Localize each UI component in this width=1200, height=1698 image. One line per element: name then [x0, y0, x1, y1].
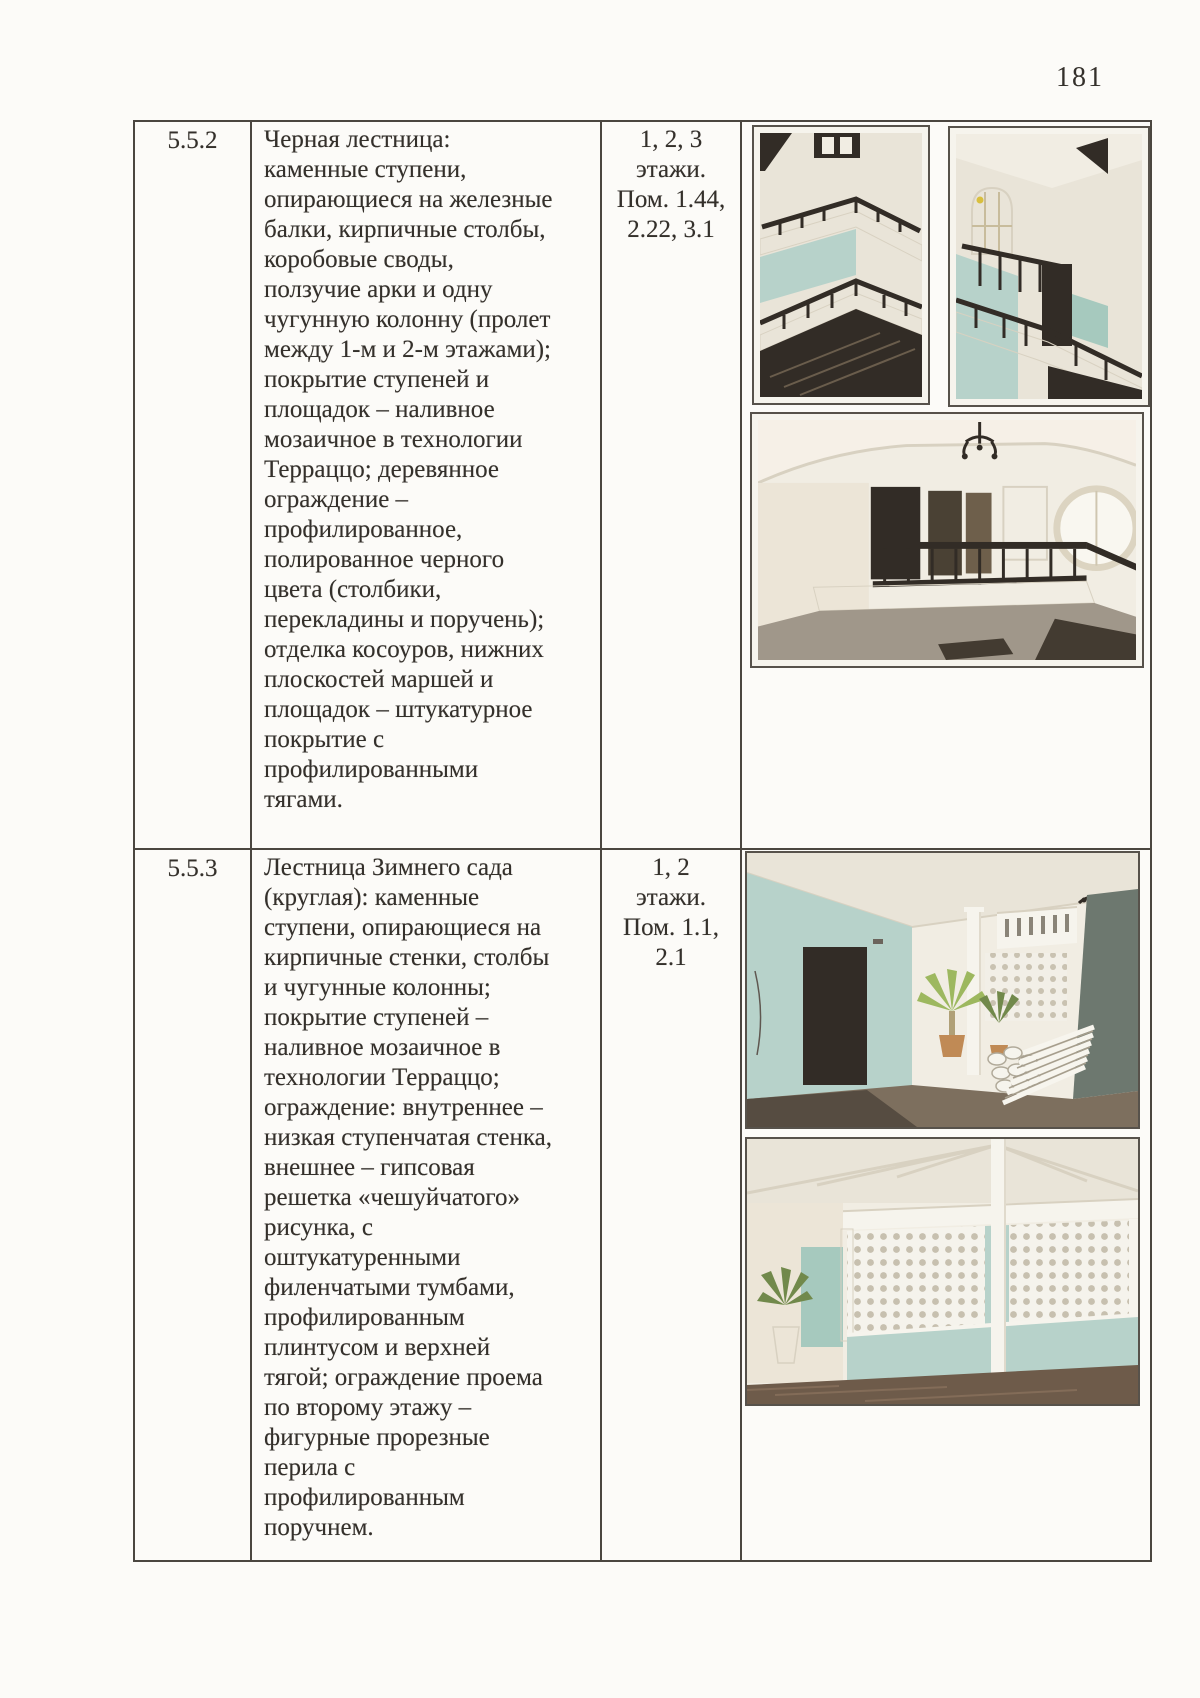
- lattice-panel: [985, 953, 1067, 1021]
- row-photos: [742, 850, 1150, 1558]
- skylight: [814, 133, 860, 158]
- photo-illustration: [747, 1139, 1138, 1404]
- features-table: 5.5.2 Черная лестница: каменные ступени,…: [133, 120, 1152, 1562]
- scanned-document-page: 181 5.5.2 Черная лестница: каменные ступ…: [0, 0, 1200, 1698]
- photo-illustration: [758, 420, 1136, 660]
- photo-winter-garden-lattice: [745, 1137, 1140, 1406]
- dark-doorway: [871, 487, 920, 579]
- row-description: Черная лестница: каменные ступени, опира…: [252, 122, 600, 848]
- photo-winter-garden-stairs: [745, 851, 1140, 1129]
- mint-wall: [956, 254, 1018, 399]
- white-column: [967, 909, 981, 1075]
- photo-illustration: [760, 133, 922, 397]
- photo-landing-round-window: [750, 412, 1144, 668]
- stair-railing: [873, 542, 1087, 549]
- white-column: [991, 1139, 1006, 1383]
- row-photos: [742, 122, 1150, 848]
- photo-stair-arched-window: [948, 126, 1150, 407]
- dark-door: [803, 947, 867, 1085]
- page-number: 181: [1056, 62, 1104, 94]
- photo-stairwell-upward: [752, 125, 930, 405]
- plant-pot: [939, 1035, 965, 1057]
- photo-illustration: [747, 853, 1138, 1127]
- row-location: 1, 2 этажи. Пом. 1.1, 2.1: [602, 850, 740, 1558]
- lattice-panel: [1009, 1220, 1138, 1323]
- row-number: 5.5.2: [135, 122, 250, 848]
- row-number: 5.5.3: [135, 850, 250, 1558]
- lattice-panel: [847, 1226, 985, 1337]
- photo-illustration: [956, 134, 1142, 399]
- row-description: Лестница Зимнего сада (круглая): каменны…: [252, 850, 600, 1558]
- row-location: 1, 2, 3 этажи. Пом. 1.44, 2.22, 3.1: [602, 122, 740, 848]
